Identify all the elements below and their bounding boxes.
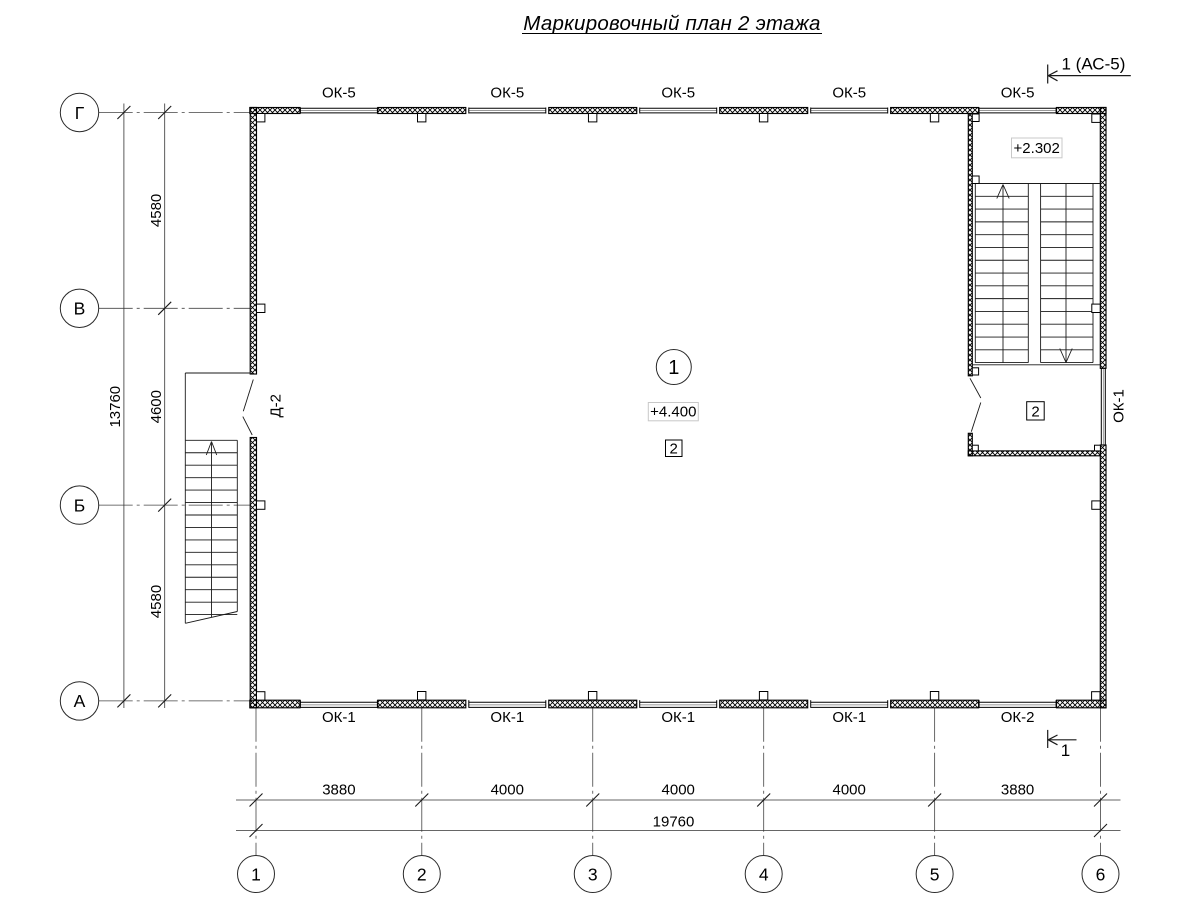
svg-text:Б: Б (74, 495, 85, 515)
svg-text:+2.302: +2.302 (1014, 140, 1060, 157)
svg-text:+4.400: +4.400 (650, 404, 696, 421)
svg-text:ОК-5: ОК-5 (322, 84, 356, 101)
svg-text:ОК-1: ОК-1 (832, 709, 866, 726)
svg-text:ОК-1: ОК-1 (661, 709, 695, 726)
svg-text:А: А (74, 691, 86, 711)
svg-text:2: 2 (417, 864, 427, 884)
svg-text:Д-2: Д-2 (268, 394, 285, 418)
svg-text:13760: 13760 (107, 386, 124, 428)
svg-text:ОК-5: ОК-5 (1001, 84, 1035, 101)
svg-text:Маркировочный план 2 этажа: Маркировочный план 2 этажа (523, 12, 820, 35)
svg-text:1: 1 (668, 357, 679, 379)
svg-text:4000: 4000 (832, 782, 865, 799)
svg-text:В: В (74, 299, 86, 319)
svg-text:4580: 4580 (148, 194, 165, 227)
svg-text:ОК-1: ОК-1 (490, 709, 524, 726)
svg-text:4000: 4000 (662, 782, 695, 799)
svg-text:ОК-1: ОК-1 (322, 709, 356, 726)
svg-text:Г: Г (75, 103, 85, 123)
svg-text:2: 2 (670, 441, 678, 458)
svg-text:1: 1 (1061, 741, 1070, 760)
svg-text:ОК-5: ОК-5 (832, 84, 866, 101)
svg-text:3880: 3880 (322, 782, 355, 799)
svg-text:6: 6 (1096, 864, 1106, 884)
svg-text:4000: 4000 (491, 782, 524, 799)
svg-text:ОК-2: ОК-2 (1001, 709, 1035, 726)
svg-text:3880: 3880 (1001, 782, 1034, 799)
svg-text:19760: 19760 (653, 814, 695, 831)
svg-text:1 (АС-5): 1 (АС-5) (1062, 55, 1126, 74)
svg-text:2: 2 (1031, 404, 1039, 421)
svg-text:ОК-5: ОК-5 (490, 84, 524, 101)
svg-text:3: 3 (588, 864, 598, 884)
svg-text:5: 5 (930, 864, 940, 884)
svg-text:4580: 4580 (148, 585, 165, 618)
svg-text:4: 4 (759, 864, 769, 884)
svg-text:ОК-1: ОК-1 (1111, 389, 1128, 423)
svg-text:1: 1 (251, 864, 261, 884)
svg-text:4600: 4600 (148, 390, 165, 423)
svg-text:ОК-5: ОК-5 (661, 84, 695, 101)
